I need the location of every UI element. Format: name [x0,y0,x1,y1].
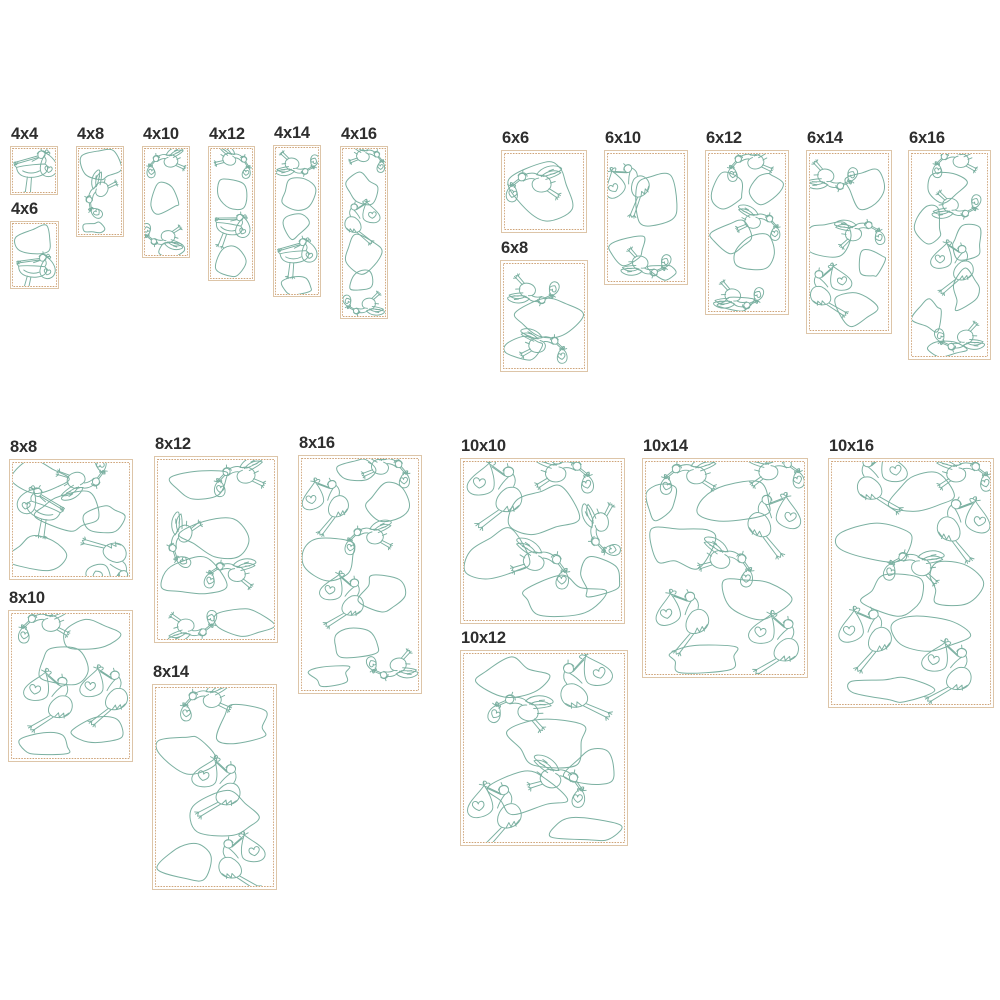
svg-text:8x14: 8x14 [153,663,190,681]
svg-text:4x4: 4x4 [11,125,39,143]
svg-text:6x14: 6x14 [807,129,844,147]
svg-text:8x12: 8x12 [155,435,191,453]
svg-text:6x16: 6x16 [909,129,945,147]
svg-text:8x16: 8x16 [299,434,335,452]
svg-text:4x12: 4x12 [209,125,245,143]
svg-text:6x10: 6x10 [605,129,641,147]
svg-text:10x10: 10x10 [461,437,506,455]
svg-text:4x8: 4x8 [77,125,104,143]
svg-text:8x10: 8x10 [9,589,45,607]
svg-text:4x14: 4x14 [274,124,311,142]
svg-text:8x8: 8x8 [10,438,37,456]
svg-text:6x6: 6x6 [502,129,529,147]
svg-text:10x16: 10x16 [829,437,874,455]
svg-text:10x14: 10x14 [643,437,689,455]
svg-text:4x16: 4x16 [341,125,377,143]
svg-text:6x8: 6x8 [501,239,528,257]
svg-text:10x12: 10x12 [461,629,506,647]
svg-text:4x10: 4x10 [143,125,179,143]
svg-text:4x6: 4x6 [11,200,38,218]
svg-text:6x12: 6x12 [706,129,742,147]
